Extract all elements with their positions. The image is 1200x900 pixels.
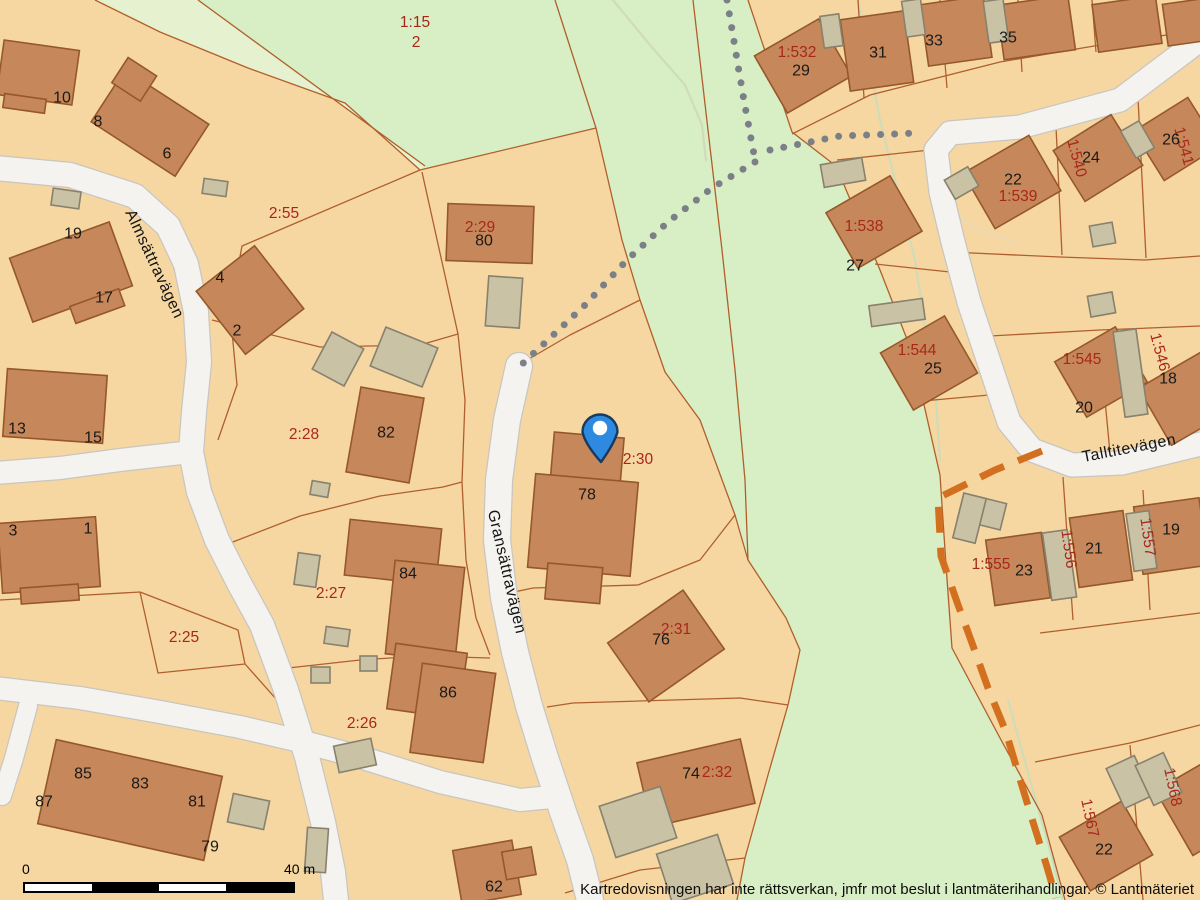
footpath-dot [740,166,747,173]
footpath-dot [551,331,558,338]
house-number: 8 [94,114,103,131]
house-number: 22 [1095,842,1113,859]
shed-84-b [324,626,350,646]
footpath-dot [835,133,842,140]
house-number: 87 [35,794,53,811]
house-number: 79 [201,839,219,856]
house-number: 27 [846,258,864,275]
footpath-dot [561,321,568,328]
footpath-dot [610,271,617,278]
house-number: 74 [682,766,700,783]
house-shape [1092,0,1162,52]
footpath-dot [780,144,787,151]
shed-shape [202,178,228,196]
house-number: 31 [869,45,887,62]
house-number: 6 [163,146,172,163]
footpath-dot [619,261,626,268]
footpath-dot [750,148,757,155]
footpath-dot [821,136,828,143]
parcel-label: 2:26 [347,715,377,732]
footpath-dot [877,131,884,138]
shed-80 [485,276,522,328]
shed-shape [485,276,522,328]
footpath-dot [704,188,711,195]
footpath-dot [629,251,636,258]
house-number: 78 [578,487,596,504]
house-number: 80 [475,233,493,250]
house-number: 21 [1085,541,1103,558]
shed-shape [324,626,350,646]
footpath-dot [671,214,678,221]
map-viewport[interactable]: AlmsättravägenGransättravägenTalltiteväg… [0,0,1200,900]
house-number: 62 [485,879,503,896]
shed-26-b [360,656,377,671]
footpath-dot [905,130,912,137]
house-shape [545,563,603,604]
shed-shape [820,14,843,48]
parcel-label: 1:15 [400,14,430,31]
footpath-dot [745,121,752,128]
scalebar-min-label: 0 [22,861,30,877]
footpath-dot [735,66,742,73]
parcel-label: 2:30 [623,451,654,468]
map-svg[interactable]: AlmsättravägenGransättravägenTalltiteväg… [0,0,1200,900]
house-number: 19 [64,226,82,243]
footpath-dot [530,350,537,357]
footpath-dot [693,197,700,204]
parcel-label: 1:545 [1063,351,1102,368]
shed-84-a [294,553,320,588]
footpath-dot [600,282,607,289]
house-tr-2 [1162,0,1200,46]
house-number: 17 [95,290,113,307]
footpath-dot [728,24,735,31]
scalebar-segment [92,884,159,891]
shed-misc-2 [1089,222,1115,247]
footpath-dot [740,93,747,100]
house-number: 84 [399,566,417,583]
house-shape [1162,0,1200,46]
parcel-label: 2:32 [702,764,732,781]
shed-82-c [310,481,330,498]
house-number: 82 [377,425,395,442]
shed-shape [1087,292,1115,317]
footpath-dot [733,52,740,59]
footpath-dot [742,107,749,114]
parcel-label: 1:555 [972,556,1011,573]
house-number: 81 [188,794,206,811]
shed-29-31 [820,14,843,48]
house-number: 15 [84,430,102,447]
house-number: 19 [1162,522,1180,539]
shed-shape [1089,222,1115,247]
footpath-dot [540,340,547,347]
house-number: 1 [84,521,93,538]
scalebar-max-label: 40 m [284,861,315,877]
house-number: 86 [439,685,457,702]
footpath-dot [682,205,689,212]
house-number: 20 [1075,400,1093,417]
footpath-dot [794,141,801,148]
house-shape [410,663,496,762]
footpath-dot [640,242,647,249]
footpath-dot [808,138,815,145]
scalebar-segment [159,884,226,891]
footpath-dot [581,302,588,309]
footpath-dot [728,173,735,180]
parcel-label: 2:55 [269,205,299,222]
footpath-dot [849,132,856,139]
parcel-label: 1:539 [999,188,1038,205]
footpath-dot [863,132,870,139]
parcel-label: 2:25 [169,629,199,646]
shed-shape [360,656,377,671]
house-number: 83 [131,776,149,793]
footpath-dot [726,10,733,17]
footpath-dot [571,312,578,319]
house-number: 4 [216,270,225,287]
scalebar-segment [25,884,92,891]
house-number: 2 [233,323,242,340]
footpath-dot [891,131,898,138]
parcel-label: 1:532 [778,44,817,61]
pin-center-dot [593,421,607,435]
house-number: 33 [925,33,943,50]
shed-shape [310,481,330,498]
footpath-dot [520,360,527,367]
footpath-dot [747,134,754,141]
shed-tl-1 [202,178,228,196]
shed-26-c [311,667,330,683]
scale-bar [23,882,295,893]
parcel-label: 1:538 [845,218,884,235]
parcel-label: 2:28 [289,426,319,443]
scalebar-segment [226,884,293,891]
shed-33 [902,0,926,37]
footpath-dot [767,147,774,154]
footpath-dot [650,232,657,239]
house-number: 3 [9,523,18,540]
shed-shape [51,188,81,209]
footpath-dot [716,180,723,187]
footpath-dot [752,159,759,166]
footpath-dot [738,79,745,86]
house-number: 13 [8,421,26,438]
footpath-dot [660,223,667,230]
shed-shape [311,667,330,683]
shed-tl-2 [51,188,81,209]
house-number: 22 [1004,172,1022,189]
house-number: 24 [1082,150,1100,167]
shed-shape [902,0,926,37]
map-disclaimer: Kartredovisningen har inte rättsverkan, … [580,881,1194,898]
footpath-dot [591,292,598,299]
house-shape [502,847,536,880]
parcel-label: 2 [412,34,421,51]
house-number: 25 [924,361,942,378]
house-number: 18 [1159,371,1177,388]
house-number: 23 [1015,563,1033,580]
shed-misc-1 [1087,292,1115,317]
house-number: 29 [792,63,810,80]
house-tr-1 [1092,0,1162,52]
house-number: 10 [53,90,71,107]
house-shape [20,584,79,604]
footpath-dot [731,38,738,45]
shed-shape [294,553,320,588]
house-number: 85 [74,766,92,783]
house-number: 26 [1162,132,1180,149]
parcel-label: 2:27 [316,585,346,602]
parcel-label: 1:544 [898,342,937,359]
house-number: 35 [999,30,1017,47]
house-number: 76 [652,632,670,649]
